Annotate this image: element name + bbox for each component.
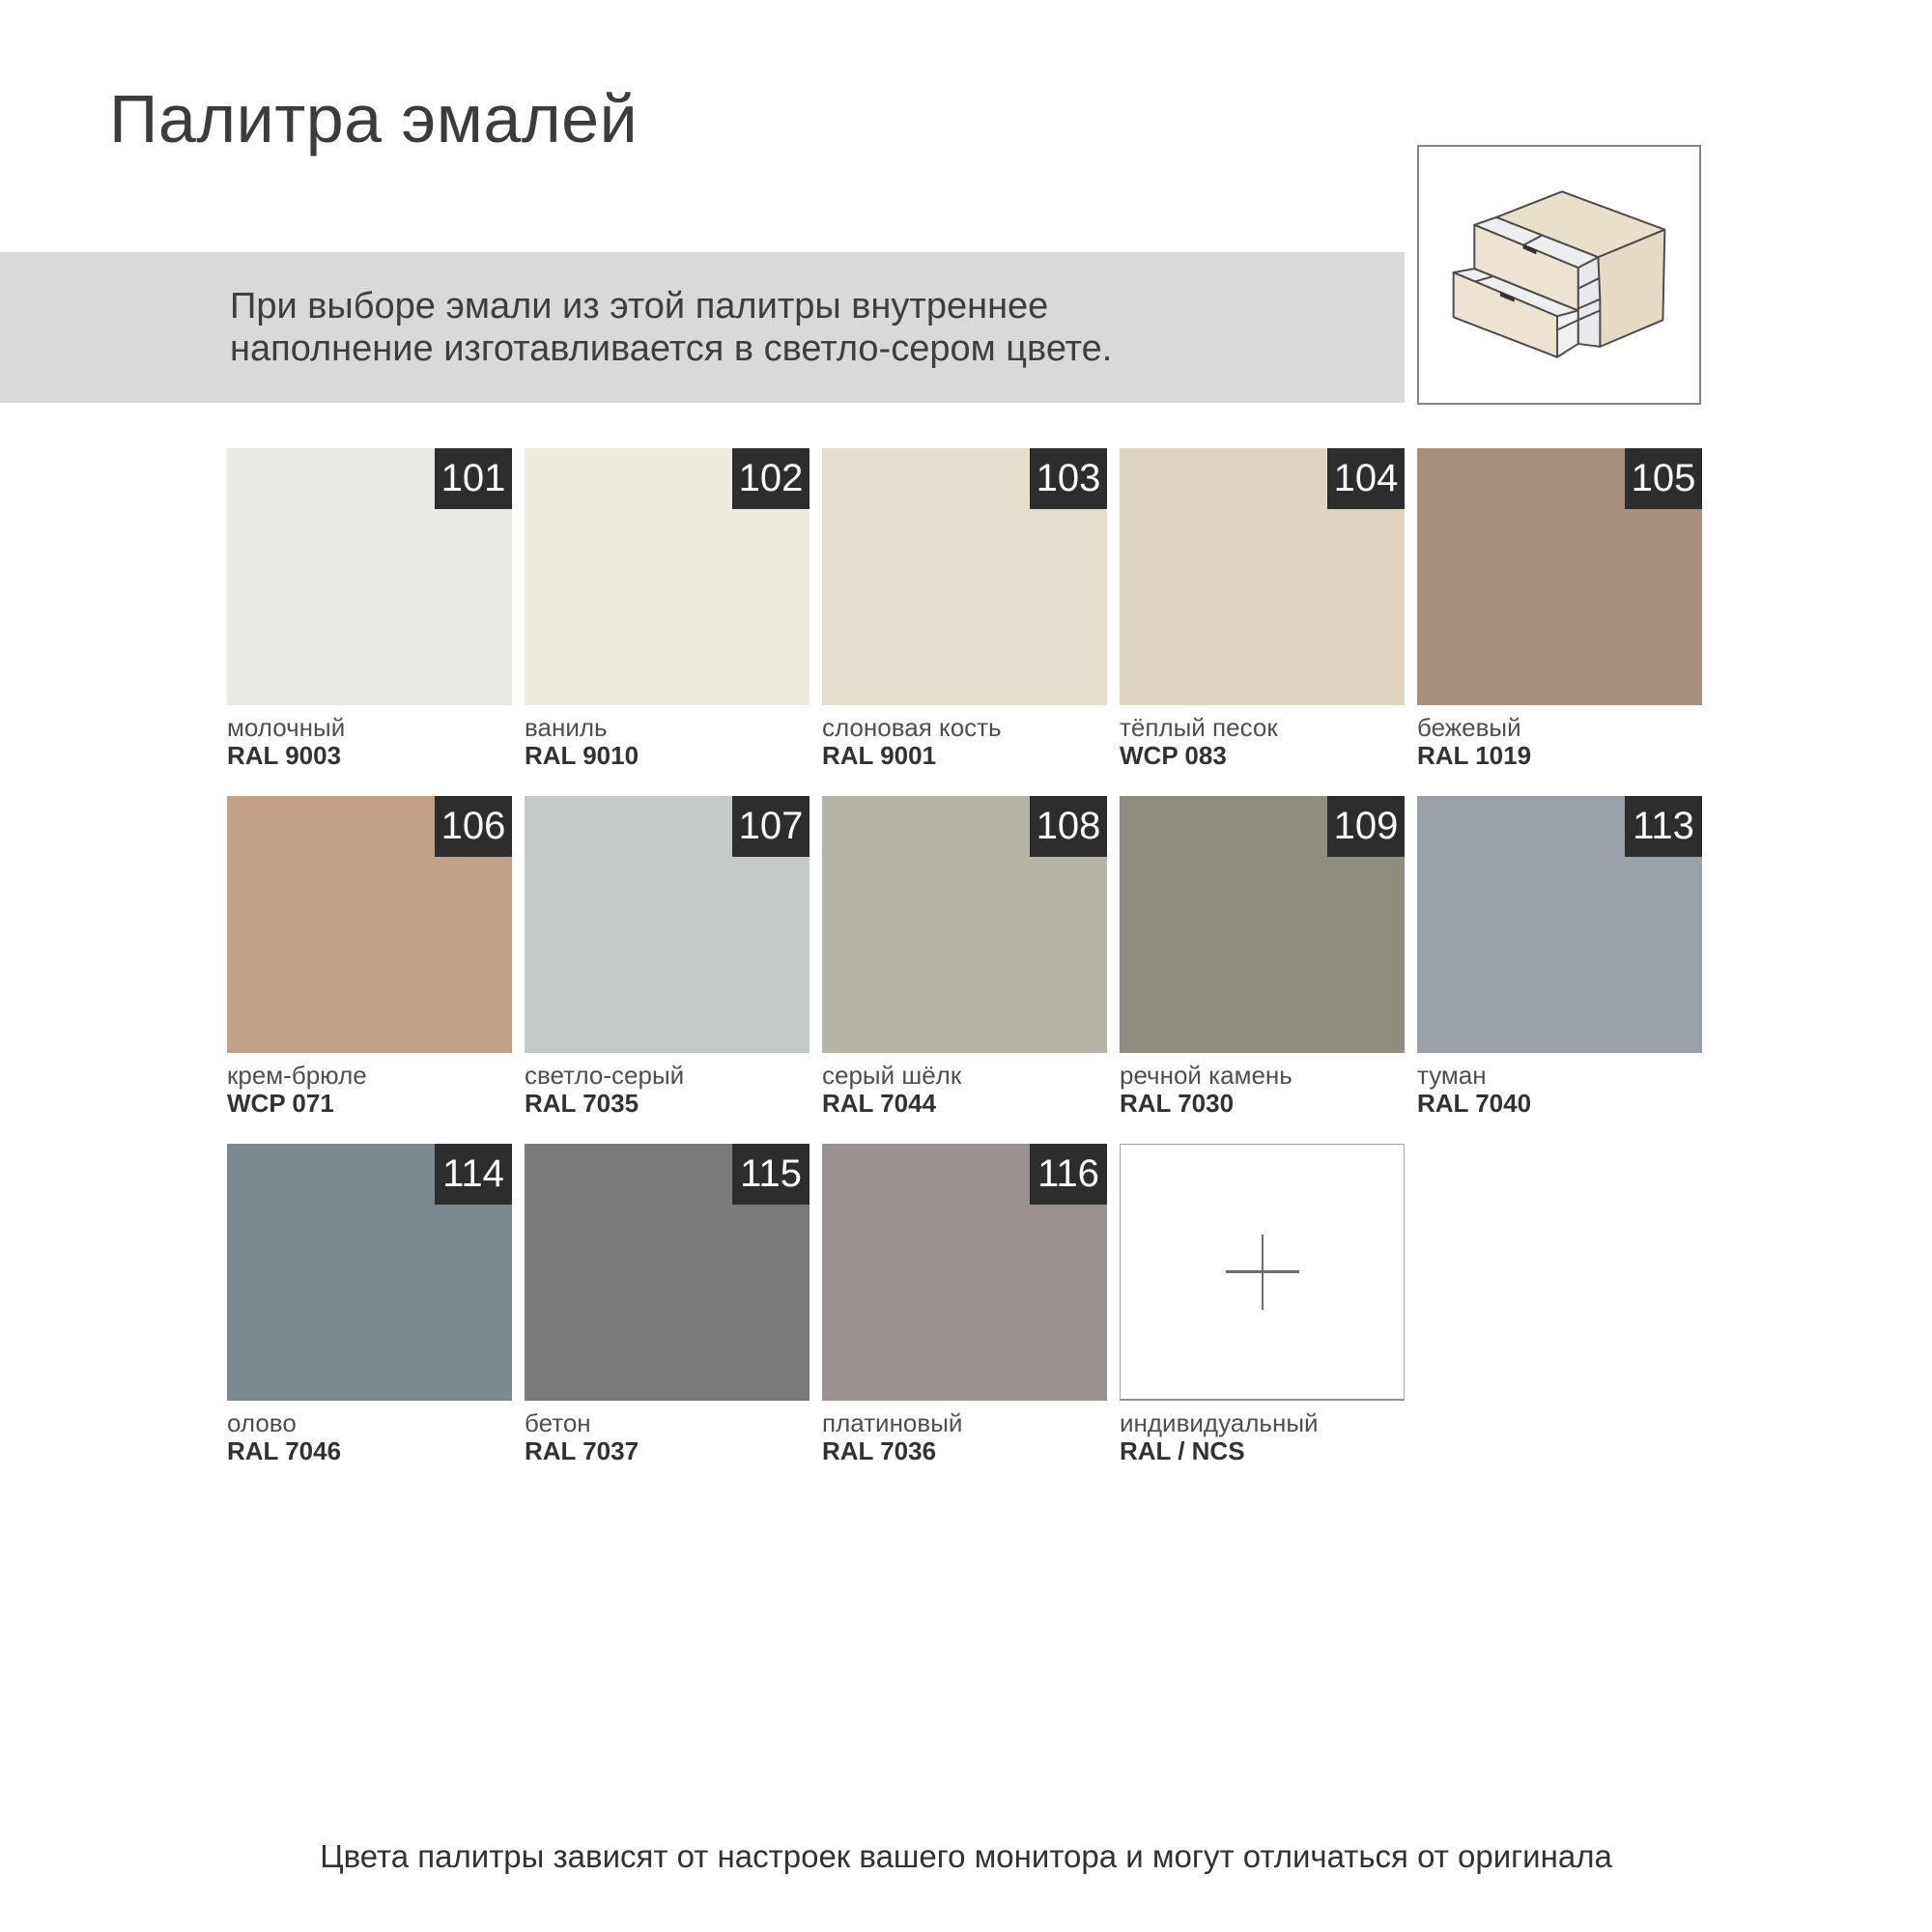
swatch-name: туман xyxy=(1417,1062,1702,1089)
swatch-number-badge: 103 xyxy=(1030,448,1107,509)
swatch-name: светло-серый xyxy=(525,1062,810,1089)
swatch-cell: 116 платиновый RAL 7036 xyxy=(822,1144,1107,1465)
swatch-tile-109[interactable]: 109 xyxy=(1120,796,1405,1053)
page-title: Палитра эмалей xyxy=(109,85,638,153)
swatch-number-badge: 108 xyxy=(1030,796,1107,857)
swatch-name: бетон xyxy=(525,1409,810,1436)
note-line-2: наполнение изготавливается в светло-серо… xyxy=(230,328,1112,369)
note-text: При выборе эмали из этой палитры внутрен… xyxy=(230,285,1112,370)
swatch-code: RAL 7036 xyxy=(822,1436,1107,1465)
swatch-name: платиновый xyxy=(822,1409,1107,1436)
swatch-number-badge: 106 xyxy=(435,796,512,857)
swatch-tile-113[interactable]: 113 xyxy=(1417,796,1702,1053)
swatch-code: RAL 9001 xyxy=(822,741,1107,770)
swatch-code: RAL 7030 xyxy=(1120,1089,1405,1118)
swatch-number-badge: 107 xyxy=(732,796,810,857)
swatch-code: RAL 7044 xyxy=(822,1089,1107,1118)
swatch-number-badge: 104 xyxy=(1327,448,1405,509)
note-line-1: При выборе эмали из этой палитры внутрен… xyxy=(230,286,1048,327)
footer-disclaimer: Цвета палитры зависят от настроек вашего… xyxy=(0,1838,1932,1875)
swatch-cell: 114 олово RAL 7046 xyxy=(227,1144,512,1465)
swatch-cell: 113 туман RAL 7040 xyxy=(1417,796,1702,1118)
swatch-name: слоновая кость xyxy=(822,714,1107,741)
swatch-tile-103[interactable]: 103 xyxy=(822,448,1107,705)
swatch-name: олово xyxy=(227,1409,512,1436)
swatch-tile-104[interactable]: 104 xyxy=(1120,448,1405,705)
swatch-cell: 103 слоновая кость RAL 9001 xyxy=(822,448,1107,770)
swatch-code: RAL / NCS xyxy=(1120,1436,1405,1465)
swatch-tile-102[interactable]: 102 xyxy=(525,448,810,705)
swatch-tile-116[interactable]: 116 xyxy=(822,1144,1107,1401)
swatch-code: RAL 7040 xyxy=(1417,1089,1702,1118)
swatch-name: тёплый песок xyxy=(1120,714,1405,741)
swatch-cell: 108 серый шёлк RAL 7044 xyxy=(822,796,1107,1118)
swatch-code: RAL 9003 xyxy=(227,741,512,770)
swatch-cell: индивидуальный RAL / NCS xyxy=(1120,1144,1405,1465)
swatch-number-badge: 102 xyxy=(732,448,810,509)
swatch-cell: 102 ваниль RAL 9010 xyxy=(525,448,810,770)
swatch-code: RAL 1019 xyxy=(1417,741,1702,770)
swatch-number-badge: 116 xyxy=(1030,1144,1107,1205)
swatch-tile-custom[interactable] xyxy=(1120,1144,1405,1401)
palette-grid: 101 молочный RAL 9003 102 ваниль RAL 901… xyxy=(227,448,1702,1465)
swatch-name: серый шёлк xyxy=(822,1062,1107,1089)
swatch-code: RAL 7037 xyxy=(525,1436,810,1465)
swatch-cell: 109 речной камень RAL 7030 xyxy=(1120,796,1405,1118)
swatch-cell: 115 бетон RAL 7037 xyxy=(525,1144,810,1465)
two-drawer-cabinet-icon xyxy=(1419,147,1699,403)
swatch-cell: 101 молочный RAL 9003 xyxy=(227,448,512,770)
swatch-tile-114[interactable]: 114 xyxy=(227,1144,512,1401)
swatch-cell: 106 крем-брюле WCP 071 xyxy=(227,796,512,1118)
swatch-code: RAL 7035 xyxy=(525,1089,810,1118)
swatch-cell: 107 светло-серый RAL 7035 xyxy=(525,796,810,1118)
swatch-number-badge: 115 xyxy=(732,1144,810,1205)
swatch-cell: 105 бежевый RAL 1019 xyxy=(1417,448,1702,770)
swatch-number-badge: 109 xyxy=(1327,796,1405,857)
swatch-tile-107[interactable]: 107 xyxy=(525,796,810,1053)
note-bar: При выборе эмали из этой палитры внутрен… xyxy=(0,252,1405,403)
swatch-name: молочный xyxy=(227,714,512,741)
swatch-number-badge: 114 xyxy=(435,1144,512,1205)
swatch-name: крем-брюле xyxy=(227,1062,512,1089)
drawer-cabinet-illustration xyxy=(1417,145,1701,405)
swatch-cell: 104 тёплый песок WCP 083 xyxy=(1120,448,1405,770)
swatch-code: WCP 083 xyxy=(1120,741,1405,770)
swatch-name: индивидуальный xyxy=(1120,1409,1405,1436)
swatch-tile-108[interactable]: 108 xyxy=(822,796,1107,1053)
swatch-code: RAL 7046 xyxy=(227,1436,512,1465)
swatch-name: ваниль xyxy=(525,714,810,741)
swatch-tile-106[interactable]: 106 xyxy=(227,796,512,1053)
swatch-tile-101[interactable]: 101 xyxy=(227,448,512,705)
plus-icon-horizontal-bar xyxy=(1226,1270,1299,1273)
swatch-number-badge: 113 xyxy=(1625,796,1702,857)
swatch-number-badge: 101 xyxy=(435,448,512,509)
swatch-code: RAL 9010 xyxy=(525,741,810,770)
swatch-number-badge: 105 xyxy=(1625,448,1702,509)
swatch-name: бежевый xyxy=(1417,714,1702,741)
swatch-code: WCP 071 xyxy=(227,1089,512,1118)
swatch-tile-105[interactable]: 105 xyxy=(1417,448,1702,705)
swatch-tile-115[interactable]: 115 xyxy=(525,1144,810,1401)
swatch-name: речной камень xyxy=(1120,1062,1405,1089)
